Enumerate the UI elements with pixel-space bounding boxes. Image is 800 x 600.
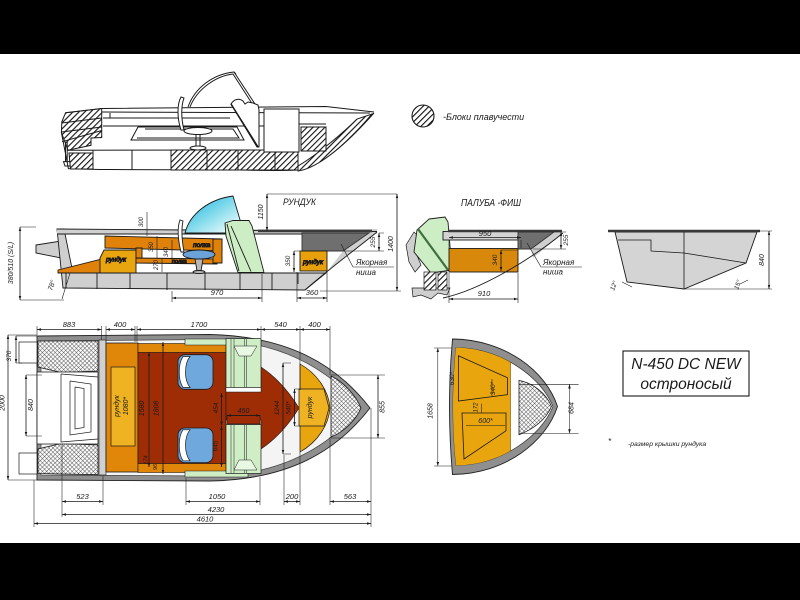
svg-text:рундук: рундук bbox=[113, 395, 121, 418]
svg-text:840: 840 bbox=[28, 399, 35, 411]
svg-text:600*: 600* bbox=[478, 418, 493, 425]
svg-text:200: 200 bbox=[285, 492, 299, 501]
svg-text:883: 883 bbox=[63, 320, 76, 329]
svg-text:540*: 540* bbox=[286, 401, 293, 415]
svg-text:N-450 DC NEW: N-450 DC NEW bbox=[631, 356, 742, 373]
svg-text:ниша: ниша bbox=[356, 268, 376, 277]
svg-text:1150: 1150 bbox=[258, 204, 265, 219]
svg-text:рундук: рундук bbox=[302, 258, 324, 266]
svg-text:255: 255 bbox=[563, 234, 570, 246]
svg-text:1580: 1580 bbox=[139, 401, 146, 417]
svg-text:ПАЛУБА -ФИШ: ПАЛУБА -ФИШ bbox=[461, 197, 521, 209]
svg-text:рундук: рундук bbox=[105, 256, 127, 264]
svg-text:563: 563 bbox=[344, 492, 357, 501]
svg-text:остроносый: остроносый bbox=[640, 376, 732, 393]
svg-text:370: 370 bbox=[6, 350, 13, 361]
svg-text:255: 255 bbox=[370, 236, 377, 248]
svg-text:-Блоки плавучести: -Блоки плавучести bbox=[443, 112, 524, 122]
svg-text:340*: 340* bbox=[490, 381, 497, 395]
svg-text:950: 950 bbox=[479, 229, 492, 238]
svg-text:350: 350 bbox=[149, 241, 155, 252]
svg-text:РУНДУК: РУНДУК bbox=[283, 197, 317, 207]
svg-text:340: 340 bbox=[164, 246, 170, 257]
svg-text:523: 523 bbox=[76, 492, 89, 501]
svg-text:1244: 1244 bbox=[274, 400, 281, 415]
svg-text:270: 270 bbox=[154, 259, 160, 271]
svg-text:1658: 1658 bbox=[428, 403, 435, 419]
svg-text:ниша: ниша bbox=[543, 268, 563, 277]
svg-text:1050: 1050 bbox=[209, 492, 227, 501]
svg-text:4610: 4610 bbox=[197, 515, 215, 524]
svg-text:2000: 2000 bbox=[0, 395, 7, 412]
svg-text:360: 360 bbox=[306, 288, 319, 297]
svg-text:1400: 1400 bbox=[388, 236, 395, 252]
svg-text:380/510 (S/L): 380/510 (S/L) bbox=[8, 242, 15, 284]
svg-text:полка: полка bbox=[172, 259, 187, 265]
svg-text:910: 910 bbox=[478, 289, 491, 298]
svg-text:855: 855 bbox=[380, 401, 387, 413]
svg-text:1700: 1700 bbox=[191, 320, 209, 329]
svg-text:450: 450 bbox=[238, 408, 250, 415]
svg-text:96: 96 bbox=[153, 463, 159, 470]
svg-text:400: 400 bbox=[308, 320, 321, 329]
svg-text:рундук: рундук bbox=[306, 396, 314, 419]
svg-text:Якорная: Якорная bbox=[355, 258, 388, 267]
svg-text:полка: полка bbox=[193, 242, 211, 249]
svg-text:1080*: 1080* bbox=[123, 397, 130, 416]
svg-text:174: 174 bbox=[144, 455, 150, 464]
svg-text:4230: 4230 bbox=[208, 505, 226, 514]
svg-text:350: 350 bbox=[285, 255, 292, 266]
svg-text:400: 400 bbox=[114, 320, 127, 329]
svg-text:1808: 1808 bbox=[154, 401, 161, 417]
svg-text:684: 684 bbox=[568, 402, 575, 414]
svg-text:840: 840 bbox=[759, 254, 766, 266]
svg-text:172: 172 bbox=[474, 402, 480, 413]
svg-text:-размер крышки рундука: -размер крышки рундука bbox=[628, 440, 706, 448]
svg-text:300: 300 bbox=[139, 216, 145, 227]
svg-text:630*: 630* bbox=[449, 371, 456, 385]
svg-text:970: 970 bbox=[211, 288, 224, 297]
svg-text:645: 645 bbox=[213, 440, 220, 451]
svg-text:Якорная: Якорная bbox=[542, 258, 575, 267]
svg-text:454: 454 bbox=[213, 402, 220, 413]
svg-text:540: 540 bbox=[274, 320, 287, 329]
svg-text:340: 340 bbox=[492, 254, 499, 265]
